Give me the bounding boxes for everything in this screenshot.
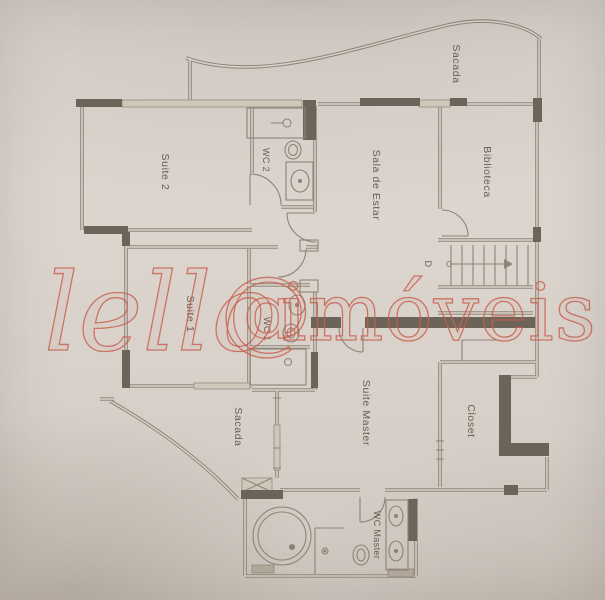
room-label-wc-master: WC Master [372,511,382,560]
master-sink-counter [386,500,408,570]
watermark: lello @ imóveis [44,251,597,376]
wc-master-sill-left [252,565,274,573]
wc2-door [250,174,281,205]
master-shower-partition [315,528,344,574]
room-label-wc-2: WC 2 [261,148,271,172]
room-label-biblioteca: Biblioteca [481,146,493,198]
window-hatched-sill [242,478,272,492]
biblioteca-door [442,210,468,236]
room-label-suite-master: Suite Master [360,380,372,446]
window-top-wall-left [122,100,302,107]
window-suite1-bottom [194,383,250,389]
master-toilet [353,545,369,565]
scanned-floor-plan: Sacada Suite 2 WC 2 Sala de Estar Biblio… [0,0,605,600]
room-label-sala-de-estar: Sala de Estar [370,150,382,221]
wc2-toilet [285,141,301,159]
hall-upper-door [287,213,316,242]
master-round-tub [253,507,311,565]
room-label-suite-2: Suite 2 [159,154,171,191]
wc-master-fixtures [253,500,408,574]
wc2-shower-head [283,119,291,127]
floor-plan-svg: Sacada Suite 2 WC 2 Sala de Estar Biblio… [0,0,605,600]
room-label-sacada-lower: Sacada [232,407,244,446]
room-label-sacada-top: Sacada [450,44,462,83]
room-label-closet: Closet [465,404,477,437]
window-top-wall-right [419,100,450,107]
watermark-brand: imóveis [281,266,597,359]
